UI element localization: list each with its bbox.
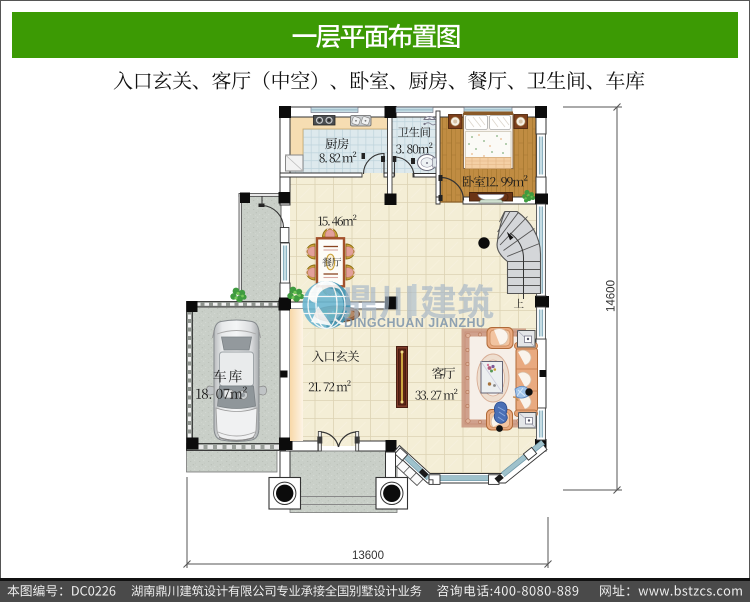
svg-text:14600: 14600 — [606, 280, 618, 312]
svg-text:13600: 13600 — [352, 550, 384, 562]
svg-text:DINGCHUAN JIANZHU: DINGCHUAN JIANZHU — [344, 316, 485, 330]
